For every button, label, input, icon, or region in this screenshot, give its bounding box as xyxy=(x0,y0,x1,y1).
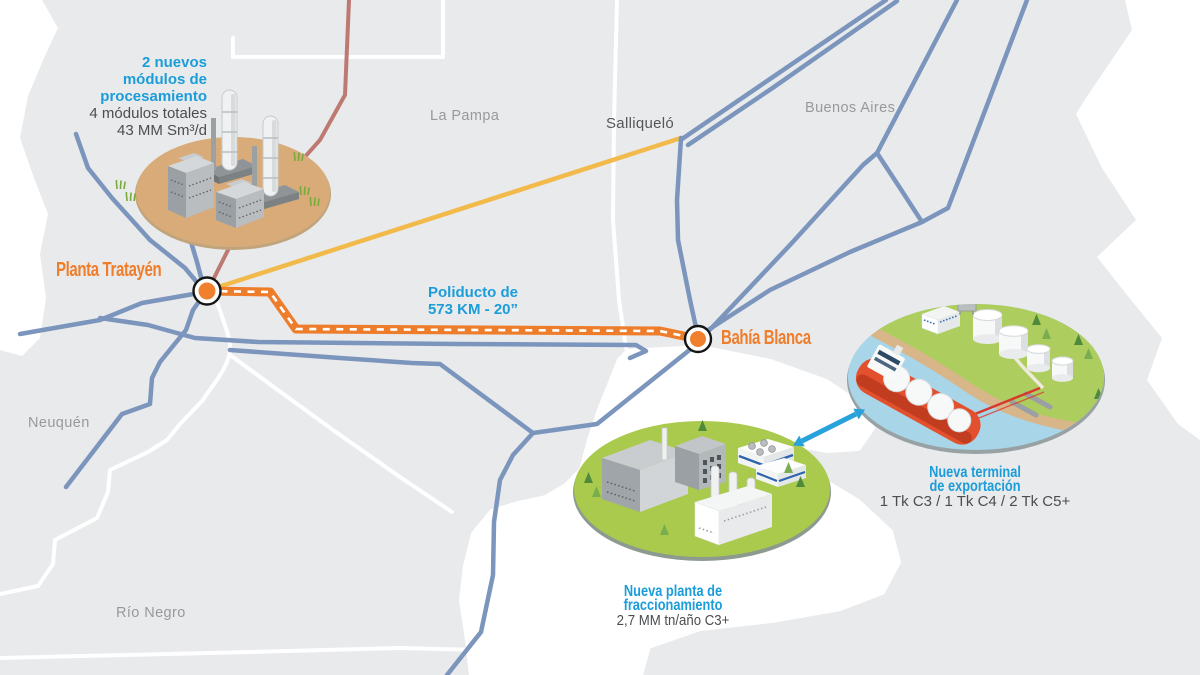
terminal-headline-line2: de exportación xyxy=(887,480,1063,494)
export-terminal-label: Nueva terminal de exportación 1 Tk C3 / … xyxy=(865,466,1085,510)
poliducto-label-line1: Poliducto de xyxy=(393,284,553,301)
buenos-aires-label: Buenos Aires xyxy=(805,100,895,116)
tratayen-node xyxy=(194,278,221,305)
terminal-spec: 1 Tk C3 / 1 Tk C4 / 2 Tk C5+ xyxy=(865,494,1085,510)
la-pampa-label: La Pampa xyxy=(430,108,499,124)
processing-plant-headline-line1: 2 nuevos xyxy=(47,54,207,71)
salliquelo-label: Salliqueló xyxy=(606,115,674,132)
processing-plant-spec-line1: 4 módulos totales xyxy=(47,105,207,122)
processing-plant-headline-line2: módulos de xyxy=(47,71,207,88)
fractionation-plant-label: Nueva planta de fraccionamiento 2,7 MM t… xyxy=(573,585,773,629)
fractionation-spec: 2,7 MM tn/año C3+ xyxy=(585,613,761,629)
bahia-blanca-node xyxy=(685,326,711,352)
rio-negro-label: Río Negro xyxy=(116,605,186,621)
fractionation-plant-illustration xyxy=(573,420,831,561)
processing-plant-label: 2 nuevos módulos de procesamiento 4 módu… xyxy=(47,54,207,139)
fractionation-headline-line2: fraccionamiento xyxy=(593,599,753,613)
poliducto-label-line2: 573 KM - 20” xyxy=(393,301,553,318)
processing-plant-headline-line3: procesamiento xyxy=(47,88,207,105)
processing-plant-spec-line2: 43 MM Sm³/d xyxy=(47,122,207,139)
bahia-blanca-label: Bahía Blanca xyxy=(721,327,811,350)
poliducto-label: Poliducto de 573 KM - 20” xyxy=(393,284,553,318)
planta-tratayen-label: Planta Tratayén xyxy=(56,259,161,282)
pipeline-infographic-map: 2 nuevos módulos de procesamiento 4 módu… xyxy=(0,0,1200,675)
neuquen-label: Neuquén xyxy=(28,415,90,431)
